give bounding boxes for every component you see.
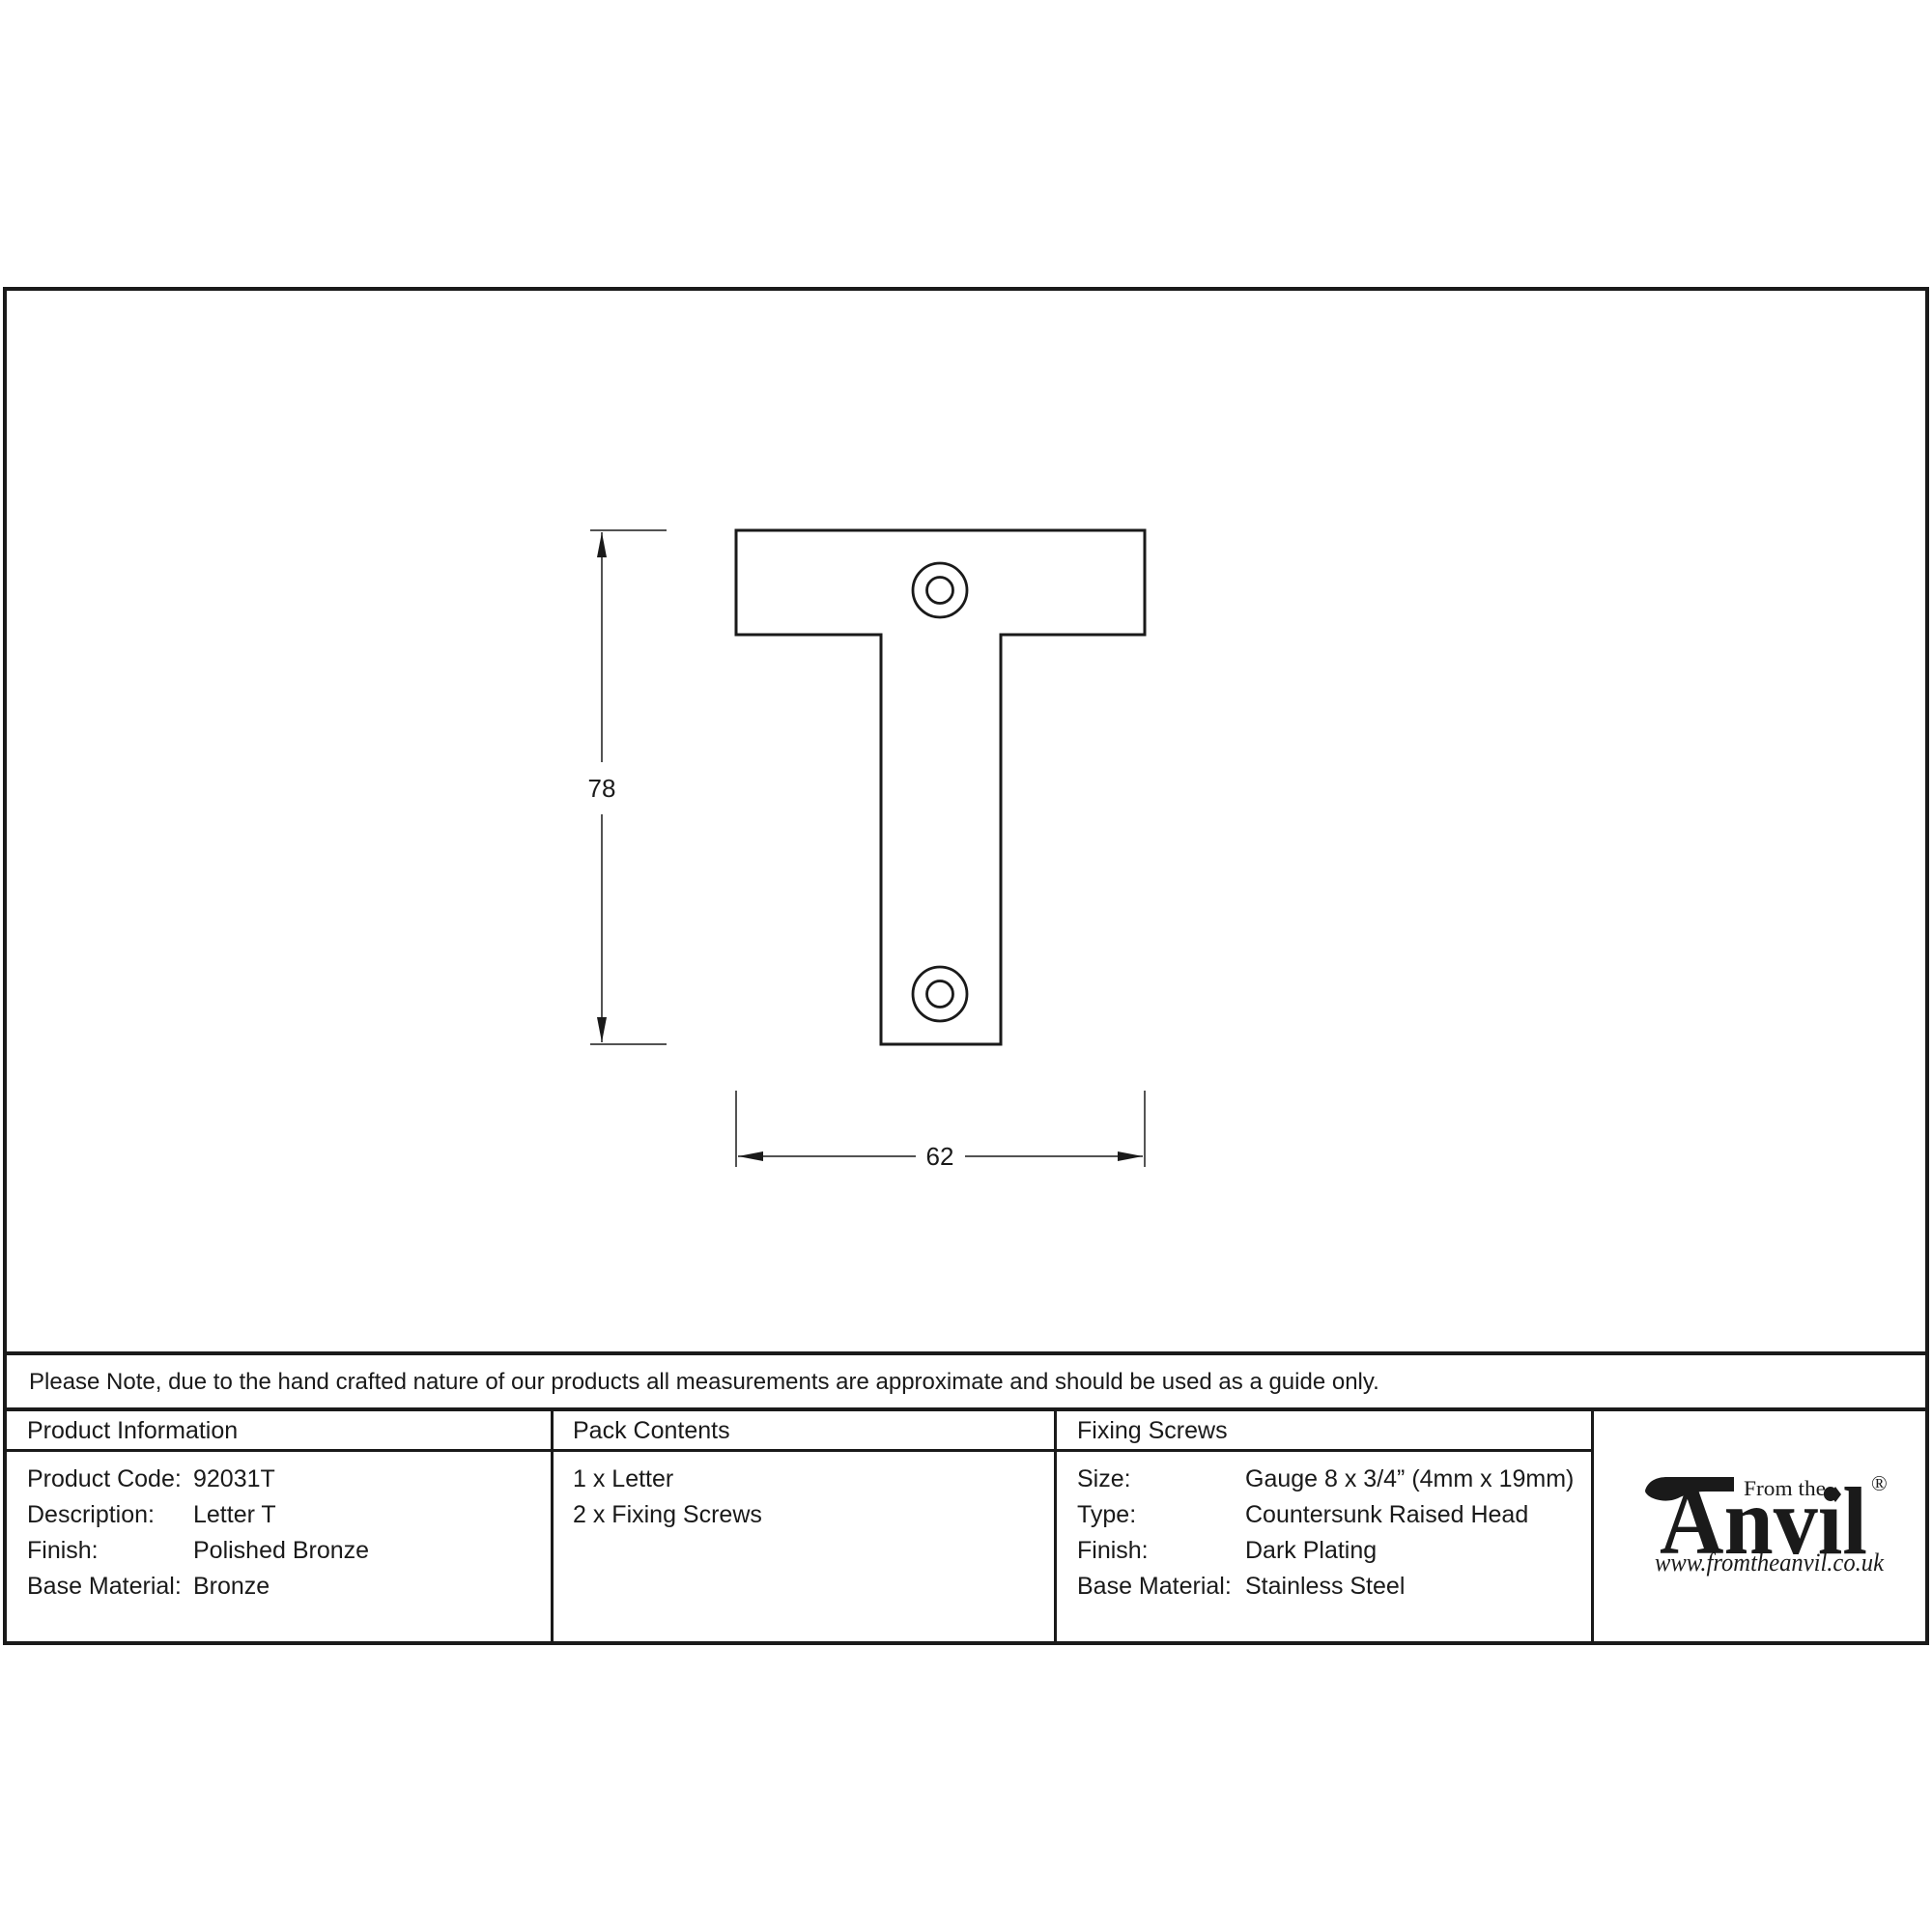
tagline-text: From the <box>1744 1476 1826 1500</box>
screw-type-value: Countersunk Raised Head <box>1245 1497 1528 1532</box>
spec-sheet-page: 78 62 Please Note, due to the hand craft… <box>0 0 1932 1932</box>
product-information-header: Product Information <box>27 1413 238 1448</box>
divider-pack-fixing <box>1054 1411 1057 1641</box>
product-code-value: 92031T <box>193 1462 275 1496</box>
base-material-label: Base Material: <box>27 1569 182 1604</box>
fixing-screws-header: Fixing Screws <box>1077 1413 1228 1448</box>
screw-base-material-label: Base Material: <box>1077 1569 1232 1604</box>
anvil-logo: Anvil From the ® www.fromtheanvil.co.uk <box>1633 1461 1903 1591</box>
screw-finish-value: Dark Plating <box>1245 1533 1377 1568</box>
finish-value: Polished Bronze <box>193 1533 369 1568</box>
table-header-underline <box>7 1449 1591 1452</box>
description-label: Description: <box>27 1497 155 1532</box>
base-material-value: Bronze <box>193 1569 270 1604</box>
finish-label: Finish: <box>27 1533 99 1568</box>
screw-base-material-value: Stainless Steel <box>1245 1569 1405 1604</box>
width-dimension-label: 62 <box>926 1142 954 1171</box>
screw-type-label: Type: <box>1077 1497 1136 1532</box>
divider-fixing-logo <box>1591 1411 1594 1641</box>
pack-contents-header: Pack Contents <box>573 1413 730 1448</box>
description-value: Letter T <box>193 1497 276 1532</box>
height-dimension-label: 78 <box>588 774 616 803</box>
product-code-label: Product Code: <box>27 1462 182 1496</box>
screw-finish-label: Finish: <box>1077 1533 1149 1568</box>
pack-item-letter: 1 x Letter <box>573 1462 673 1496</box>
screw-size-label: Size: <box>1077 1462 1131 1496</box>
divider-product-pack <box>551 1411 554 1641</box>
screw-size-value: Gauge 8 x 3/4” (4mm x 19mm) <box>1245 1462 1574 1496</box>
website-url: www.fromtheanvil.co.uk <box>1655 1548 1884 1577</box>
note-text: Please Note, due to the hand crafted nat… <box>29 1365 1379 1400</box>
registered-mark: ® <box>1871 1471 1888 1495</box>
pack-item-screws: 2 x Fixing Screws <box>573 1497 762 1532</box>
technical-drawing: 78 62 <box>0 0 1932 1352</box>
